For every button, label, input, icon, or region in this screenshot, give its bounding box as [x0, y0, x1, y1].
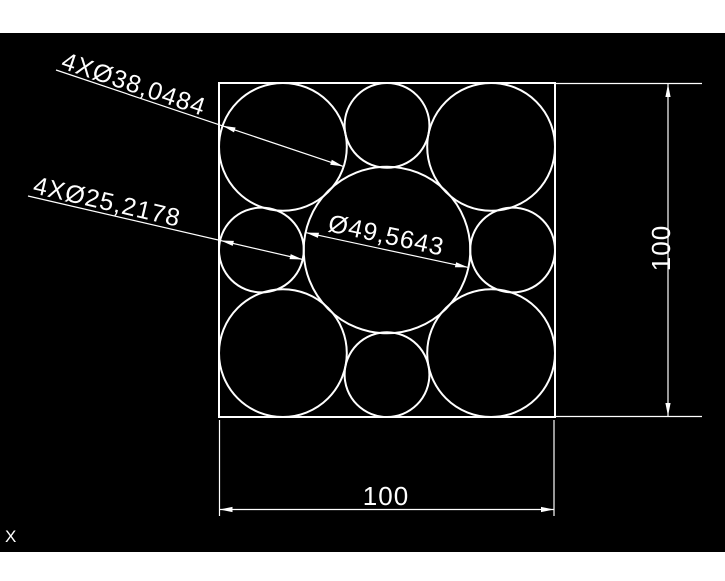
dim-text-corner-circles[interactable]: 4XØ38,0484	[58, 47, 209, 122]
dimension-width[interactable]: 100	[220, 420, 555, 516]
dim-text-edge-circles[interactable]: 4XØ25,2178	[31, 172, 184, 233]
dimension-center-circle[interactable]: Ø49,5643	[306, 209, 468, 267]
dim-text-height[interactable]: 100	[646, 225, 676, 271]
arrowhead	[223, 126, 236, 133]
circle-edge-right[interactable]	[470, 208, 555, 293]
arrowhead	[665, 403, 670, 416]
arrowhead	[220, 507, 233, 512]
arrowhead	[455, 262, 468, 267]
drawing-canvas[interactable]: 4XØ38,0484 4XØ25,2178 Ø49,5643 100	[0, 0, 725, 581]
dim-text-center-circle[interactable]: Ø49,5643	[326, 209, 447, 261]
cad-window: 4XØ38,0484 4XØ25,2178 Ø49,5643 100	[0, 0, 725, 581]
ucs-x-axis-label: X	[5, 527, 16, 546]
circle-edge-top[interactable]	[345, 83, 430, 168]
circle-edge-bottom[interactable]	[345, 332, 430, 417]
dimension-corner-circles[interactable]: 4XØ38,0484	[56, 47, 343, 166]
arrowhead	[290, 254, 303, 259]
dimension-edge-circles[interactable]: 4XØ25,2178	[28, 172, 303, 260]
arrowhead	[221, 241, 234, 246]
arrowhead	[306, 233, 319, 238]
dim-text-width[interactable]: 100	[363, 481, 409, 511]
arrowhead	[330, 160, 343, 167]
arrowhead	[541, 507, 554, 512]
arrowhead	[665, 84, 670, 97]
dimension-height[interactable]: 100	[556, 84, 702, 417]
